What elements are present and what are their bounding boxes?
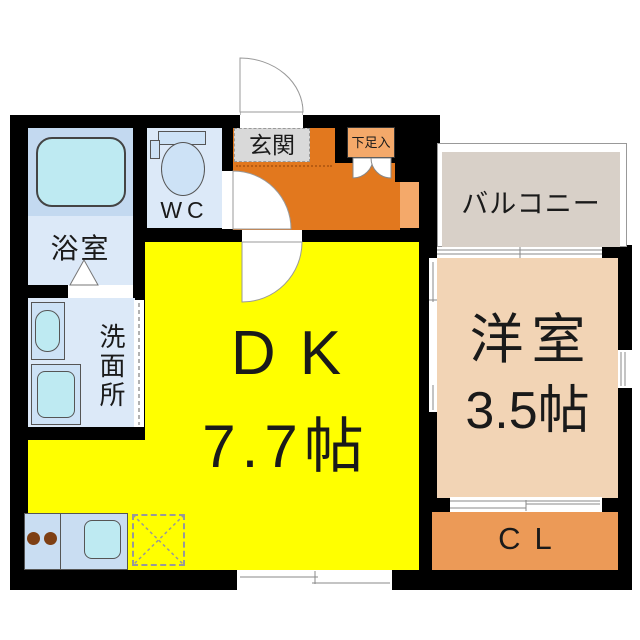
- dk-south-window: [237, 570, 392, 590]
- entrance-step-strip: [400, 182, 419, 228]
- bathroom-door-gap: [68, 285, 133, 298]
- refrigerator-space: [132, 514, 185, 566]
- toilet-bowl-icon: [161, 142, 205, 196]
- western-right-window: [618, 350, 632, 388]
- washing-machine-drum-icon: [37, 371, 75, 418]
- washroom-label: 洗面所: [93, 305, 130, 427]
- floor-plan: 玄関 下足入 WC 浴室 洗面所 DK 7.7帖 バルコニー 洋室 3.5帖 C…: [0, 0, 640, 640]
- balcony-label: バルコニー: [442, 182, 620, 221]
- wc-door-gap: [222, 171, 233, 229]
- closet-sliding-door: [450, 497, 602, 512]
- entrance-step-line: [236, 165, 332, 167]
- entrance-dk-door-gap: [242, 230, 302, 242]
- stove-burner-icon: [27, 532, 40, 545]
- front-door-gap: [240, 115, 303, 128]
- kitchen-counter-divider: [60, 513, 61, 570]
- toilet-flush-icon: [150, 140, 160, 159]
- closet-label: CL: [432, 521, 618, 557]
- western-sliding-door: [429, 258, 437, 412]
- dk-size-label: 7.7帖: [150, 398, 422, 485]
- shoe-cabinet-label: 下足入: [347, 127, 395, 158]
- kitchen-sink-icon: [84, 520, 121, 559]
- sink-basin-icon: [35, 310, 60, 352]
- entrance-label: 玄関: [234, 128, 310, 162]
- balcony-window: [437, 247, 602, 258]
- stove-burner-icon: [44, 532, 57, 545]
- wc-label: WC: [147, 197, 222, 224]
- washroom-sliding-door: [134, 300, 144, 427]
- western-room-size-label: 3.5帖: [437, 368, 618, 443]
- dk-label: DK: [150, 318, 422, 389]
- bathroom-label: 浴室: [28, 227, 133, 267]
- room-entrance-east: [335, 163, 395, 230]
- bathtub-icon: [36, 137, 126, 207]
- western-room-label: 洋室: [437, 295, 618, 374]
